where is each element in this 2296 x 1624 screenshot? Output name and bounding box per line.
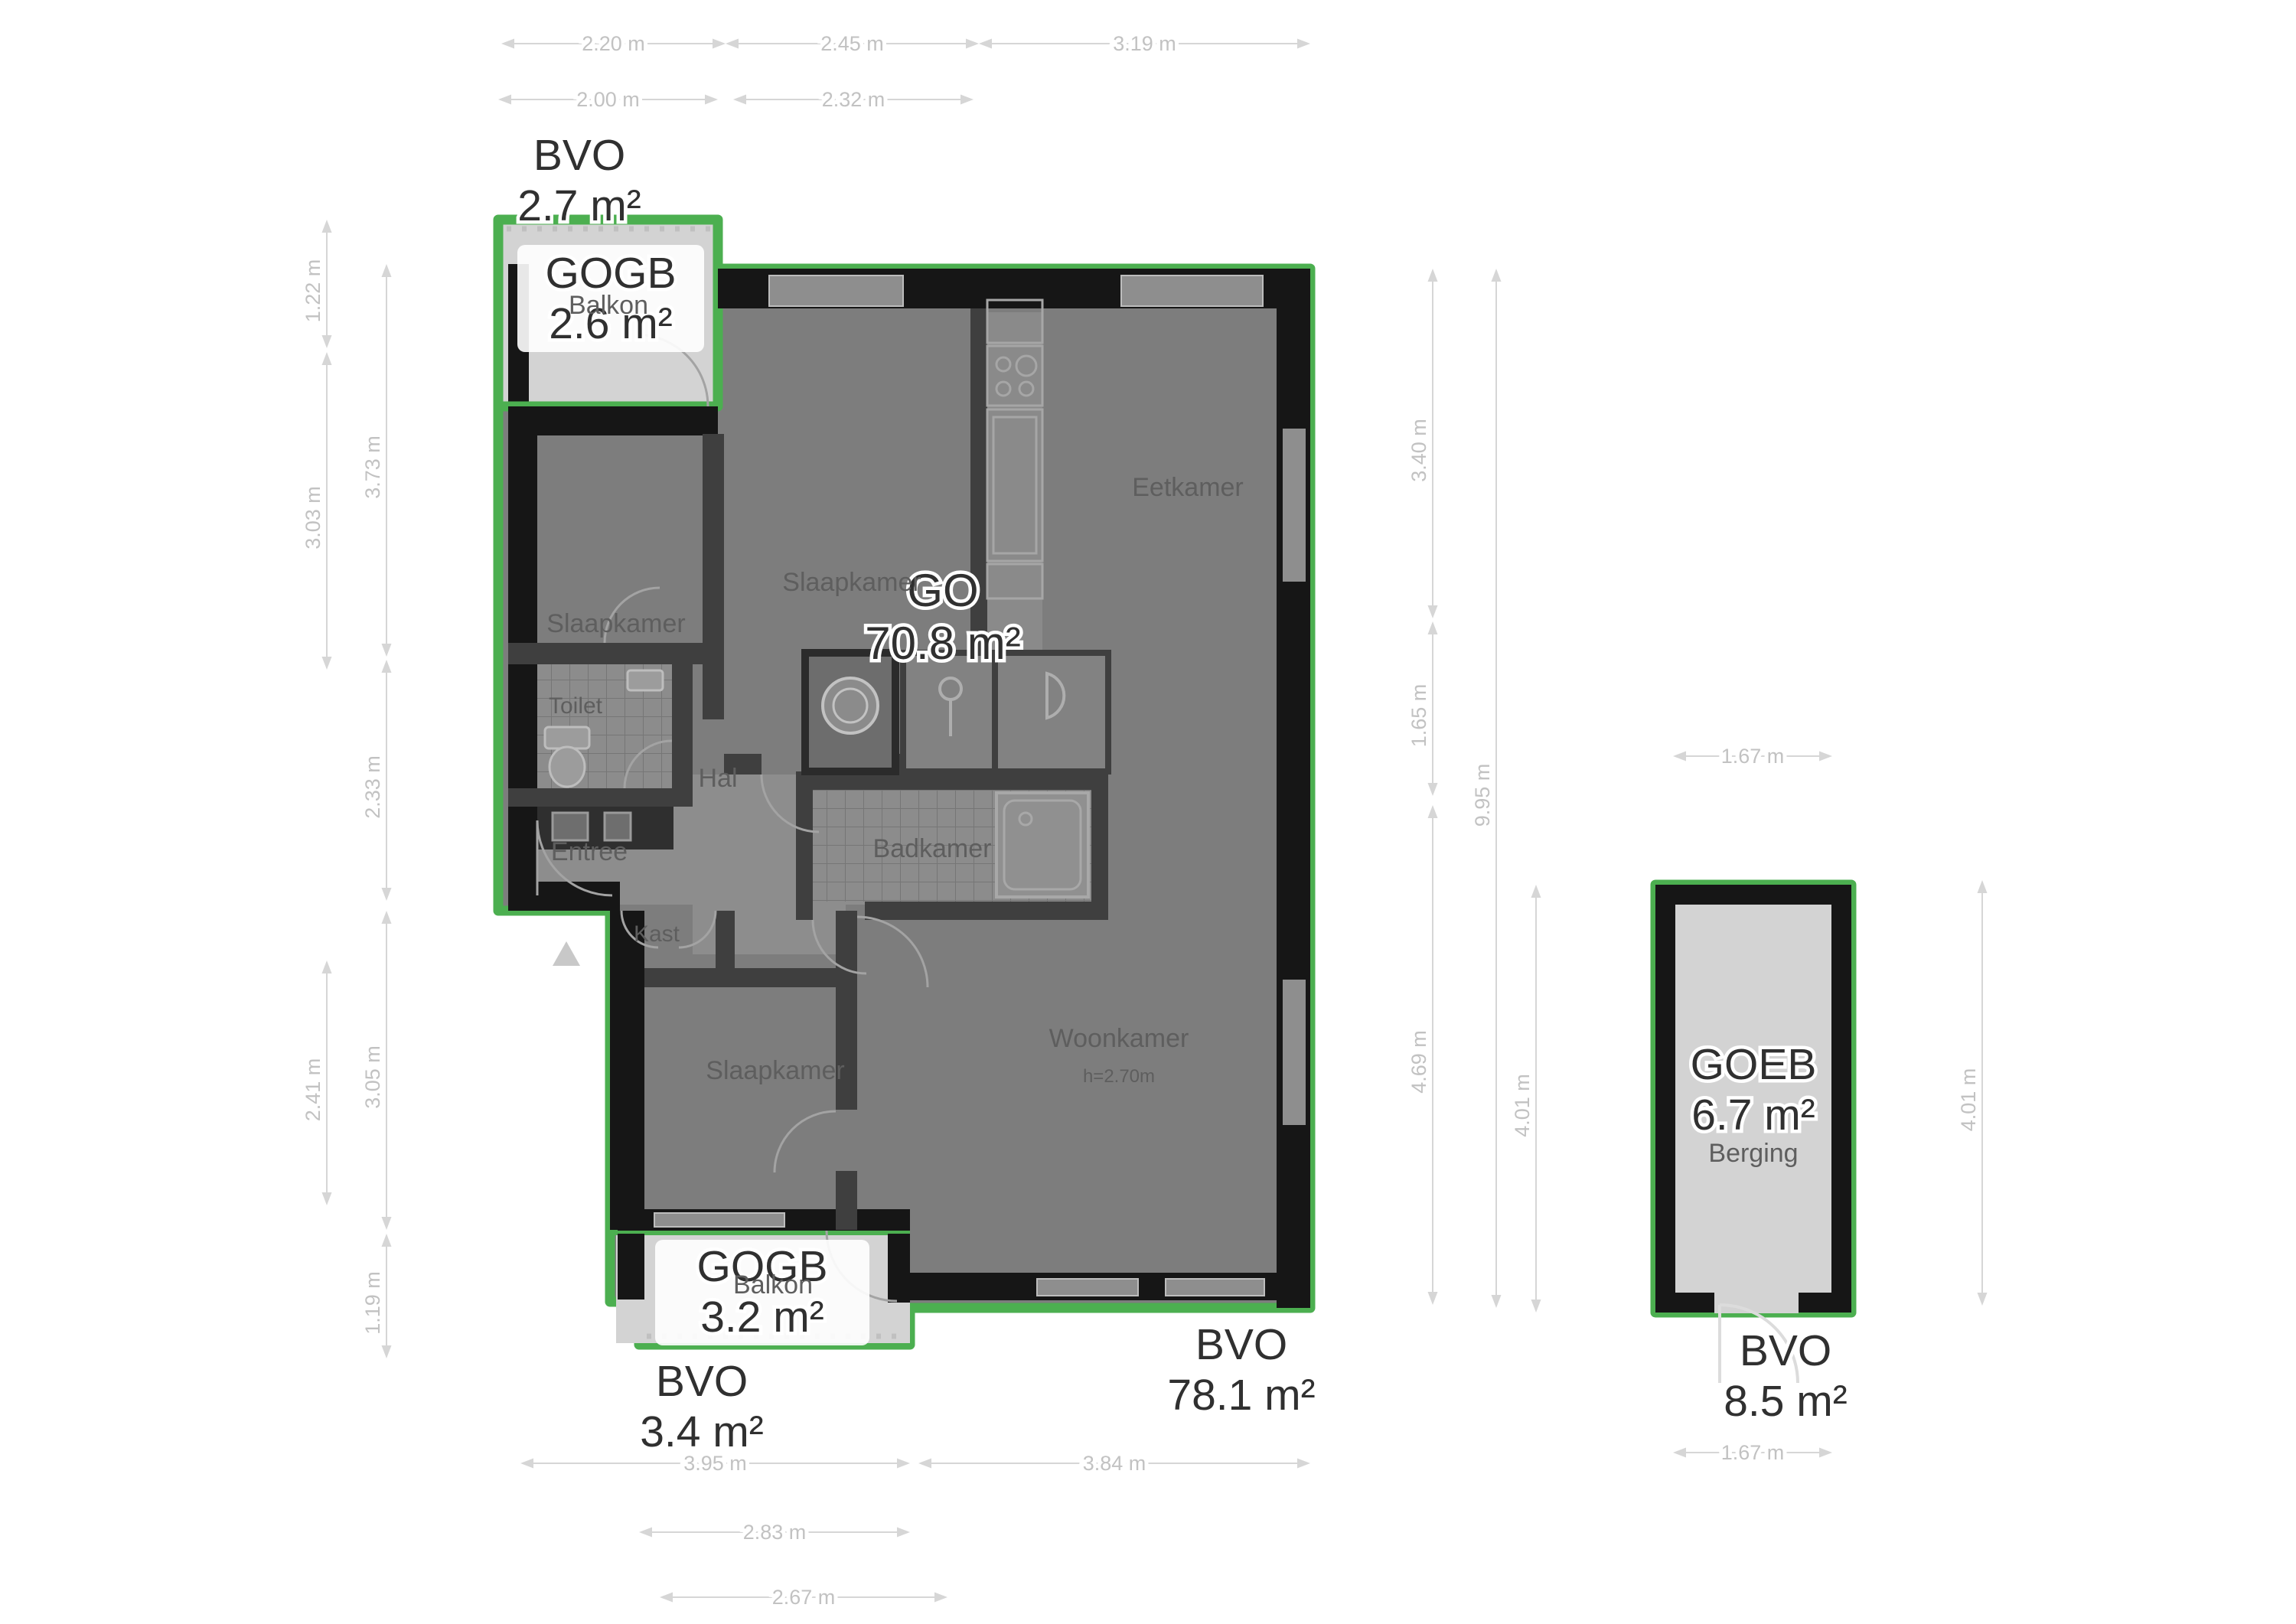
room-label-woonkamer-height: h=2.70m bbox=[1083, 1066, 1155, 1087]
wall-left-lower bbox=[610, 911, 644, 1230]
wall-toilet-north bbox=[508, 643, 703, 664]
area-label-line: GOEB bbox=[1691, 1040, 1817, 1089]
area-label-line: BVO bbox=[533, 131, 625, 180]
area-label-line: 6.7 m² bbox=[1691, 1091, 1815, 1140]
wall-balcony-bottom-left bbox=[618, 1234, 644, 1300]
dim-label: 2.00 m bbox=[576, 88, 640, 111]
dim-label: 2.32 m bbox=[822, 88, 885, 111]
room-label-toilet: Toilet bbox=[549, 693, 603, 719]
dim-label: 2.41 m bbox=[302, 1058, 325, 1122]
dim-vertical-11: 4.01 m bbox=[1511, 885, 1541, 1313]
dim-horizontal-0: 2.20 m bbox=[501, 32, 726, 55]
wall-badkamer-south bbox=[865, 902, 1108, 920]
tech-closets bbox=[805, 653, 1108, 771]
room-label-berging: Berging bbox=[1708, 1139, 1798, 1168]
room-label-slaapkamer-mid: Slaapkamer bbox=[782, 568, 921, 597]
wall-badkamer-west bbox=[796, 771, 813, 920]
dim-vertical-4: 2.33 m bbox=[361, 660, 392, 901]
dim-horizontal-10: 1.67 m bbox=[1673, 1441, 1832, 1464]
window-right-1 bbox=[1283, 429, 1306, 582]
dim-horizontal-4: 2.32 m bbox=[733, 88, 974, 111]
dim-label: 1.67 m bbox=[1721, 1441, 1785, 1464]
toilet-tank bbox=[545, 727, 589, 748]
window-right-2 bbox=[1283, 980, 1306, 1125]
berging-door-opening bbox=[1714, 1280, 1799, 1313]
area-label-bvo-berging: BVO8.5 m² bbox=[1724, 1326, 1848, 1426]
dim-vertical-9: 4.69 m bbox=[1407, 805, 1438, 1305]
wall-toilet-south bbox=[508, 788, 693, 807]
bathtub-icon bbox=[996, 793, 1088, 897]
room-label-balkon-top: Balkon bbox=[569, 291, 648, 320]
area-label-bvo-main: BVO78.1 m² bbox=[1167, 1320, 1315, 1420]
area-label-line: 78.1 m² bbox=[1167, 1371, 1315, 1420]
dim-label: 4.01 m bbox=[1511, 1074, 1534, 1137]
dim-label: 3.05 m bbox=[361, 1045, 384, 1109]
toilet-room bbox=[537, 664, 672, 788]
dim-label: 2.67 m bbox=[772, 1586, 836, 1609]
floorplan-drawing: 2.20 m2.45 m3.19 m2.00 m2.32 m3.95 m3.84… bbox=[0, 0, 2296, 1624]
window-top-1 bbox=[769, 276, 903, 306]
dim-label: 1.65 m bbox=[1407, 684, 1430, 748]
dim-vertical-5: 3.05 m bbox=[361, 911, 392, 1230]
wall-badkamer-east bbox=[1091, 771, 1108, 920]
area-label-line: BVO bbox=[656, 1357, 748, 1406]
north-arrow-icon bbox=[553, 941, 580, 966]
wall-toilet-east bbox=[672, 664, 693, 805]
area-label-bvo-bottom: BVO3.4 m² bbox=[640, 1357, 764, 1456]
area-label-line: BVO bbox=[1195, 1320, 1287, 1369]
dim-label: 3.73 m bbox=[361, 435, 384, 499]
dim-label: 2.83 m bbox=[743, 1521, 807, 1544]
dim-vertical-12: 4.01 m bbox=[1957, 880, 1988, 1306]
room-label-kast: Kast bbox=[634, 921, 680, 947]
area-label-line: 70.8 m² bbox=[865, 618, 1020, 669]
room-label-woonkamer: Woonkamer bbox=[1049, 1024, 1189, 1053]
window-top-2 bbox=[1121, 276, 1263, 306]
area-label-line: 3.2 m² bbox=[700, 1293, 824, 1342]
main-unit bbox=[498, 220, 1310, 1345]
dim-vertical-7: 3.40 m bbox=[1407, 269, 1438, 618]
dim-vertical-6: 1.19 m bbox=[361, 1234, 392, 1358]
wall-slaapkamers-divider bbox=[703, 434, 724, 719]
dim-label: 9.95 m bbox=[1471, 764, 1494, 827]
room-label-slaapkamer-bottom: Slaapkamer bbox=[706, 1056, 844, 1085]
dim-horizontal-7: 2.83 m bbox=[639, 1521, 910, 1544]
wall-right bbox=[1277, 269, 1310, 1308]
dim-label: 2.20 m bbox=[582, 32, 645, 55]
dim-horizontal-3: 2.00 m bbox=[498, 88, 718, 111]
meter-box-1 bbox=[553, 813, 588, 840]
dim-horizontal-1: 2.45 m bbox=[726, 32, 979, 55]
area-label-line: BVO bbox=[1740, 1326, 1831, 1375]
dim-horizontal-8: 2.67 m bbox=[660, 1586, 947, 1609]
room-label-entree: Entree bbox=[551, 837, 628, 866]
dim-label: 3.19 m bbox=[1113, 32, 1176, 55]
floorplan-page: 2.20 m2.45 m3.19 m2.00 m2.32 m3.95 m3.84… bbox=[0, 0, 2296, 1624]
wall-balcony-woonkamer bbox=[888, 1234, 910, 1303]
window-slaapkamer-bottom bbox=[654, 1213, 784, 1227]
dim-label: 2.45 m bbox=[820, 32, 884, 55]
washing-machine-icon bbox=[823, 678, 878, 733]
dim-label: 4.69 m bbox=[1407, 1030, 1430, 1094]
room-label-balkon-bottom: Balkon bbox=[733, 1270, 813, 1300]
wall-woonkamer-west-b bbox=[836, 1171, 857, 1230]
dim-label: 4.01 m bbox=[1957, 1068, 1980, 1132]
meter-box-2 bbox=[605, 813, 631, 840]
room-label-eetkamer: Eetkamer bbox=[1132, 473, 1244, 502]
wall-entree-south bbox=[508, 882, 620, 911]
dim-horizontal-9: 1.67 m bbox=[1673, 745, 1832, 768]
dim-label: 2.33 m bbox=[361, 755, 384, 819]
dim-vertical-1: 3.03 m bbox=[302, 352, 332, 670]
area-label-line: 3.4 m² bbox=[640, 1407, 764, 1456]
toilet-sink-icon bbox=[628, 670, 663, 690]
room-label-badkamer: Badkamer bbox=[873, 834, 992, 863]
dim-label: 1.19 m bbox=[361, 1271, 384, 1335]
room-label-slaapkamer-left: Slaapkamer bbox=[546, 609, 685, 638]
dim-vertical-10: 9.95 m bbox=[1471, 269, 1502, 1308]
toilet-bowl-icon bbox=[550, 747, 585, 787]
dim-vertical-0: 1.22 m bbox=[302, 220, 332, 348]
area-label-line: 2.7 m² bbox=[517, 181, 641, 230]
wall-under-balcony bbox=[508, 406, 718, 435]
dim-horizontal-6: 3.84 m bbox=[918, 1452, 1310, 1475]
tech-closet-block bbox=[903, 653, 1108, 771]
window-woonkamer-1 bbox=[1037, 1279, 1138, 1296]
dim-label: 3.03 m bbox=[302, 486, 325, 549]
window-woonkamer-2 bbox=[1166, 1279, 1264, 1296]
dim-label: 3.40 m bbox=[1407, 419, 1430, 482]
wall-kast-south bbox=[644, 968, 839, 987]
dim-vertical-2: 2.41 m bbox=[302, 960, 332, 1205]
dim-vertical-3: 3.73 m bbox=[361, 264, 392, 657]
dim-label: 1.67 m bbox=[1721, 745, 1785, 768]
dim-vertical-8: 1.65 m bbox=[1407, 621, 1438, 796]
area-label-line: 8.5 m² bbox=[1724, 1377, 1848, 1426]
dim-horizontal-2: 3.19 m bbox=[979, 32, 1310, 55]
area-label-bvo-top-left: BVO2.7 m² bbox=[517, 131, 641, 230]
dim-label: 3.84 m bbox=[1083, 1452, 1146, 1475]
dim-label: 1.22 m bbox=[302, 259, 325, 323]
room-label-hal: Hal bbox=[698, 764, 737, 793]
